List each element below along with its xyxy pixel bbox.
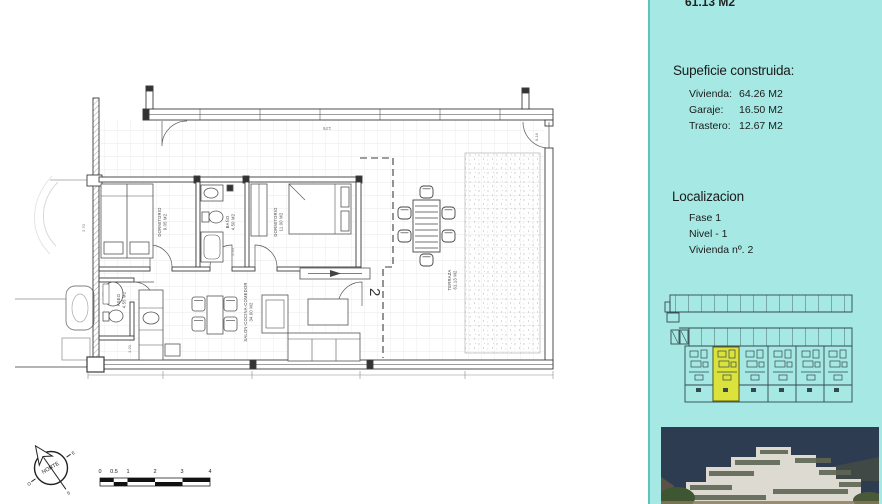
svg-text:BAÑO: BAÑO — [225, 215, 230, 228]
terrace-paving — [465, 153, 540, 353]
svg-text:DORMITORIO: DORMITORIO — [273, 207, 278, 237]
top-area-value: 61.13 M2 — [685, 0, 735, 9]
location-list: Fase 1 Nivel - 1 Vivienda nº. 2 — [689, 210, 753, 258]
compass-south: S — [66, 490, 71, 496]
surface-heading: Supeficie construida: — [673, 63, 794, 78]
compass-norte-label: NORTE — [41, 461, 61, 476]
compass-east: E — [71, 450, 76, 456]
scale-bar: 0 0.5 1 2 3 4 — [98, 469, 211, 486]
svg-text:4.55 M2: 4.55 M2 — [122, 291, 127, 308]
room-label-bano: BAÑO 4.50 M2 — [225, 213, 236, 230]
surface-list: Vivienda: 64.26 M2 Garaje: 16.50 M2 Tras… — [689, 86, 783, 134]
room-label-terraza: TERRAZA 61.13 M2 — [447, 270, 458, 291]
svg-text:61.13 M2: 61.13 M2 — [453, 270, 458, 290]
surface-item-value: 16.50 M2 — [739, 102, 783, 118]
dim-220: 2.20 — [230, 247, 235, 256]
scale-tick-0: 0 — [98, 469, 101, 475]
surface-item-garaje: Garaje: 16.50 M2 — [689, 102, 783, 118]
info-sidebar: 61.13 M2 Supeficie construida: Vivienda:… — [648, 0, 882, 504]
scale-tick-05: 0.5 — [110, 469, 118, 475]
development-photo — [661, 427, 879, 504]
dimension-ticks — [88, 371, 553, 379]
room-label-aseo: ASEO 4.55 M2 — [116, 291, 127, 308]
dim-top-width: 13'6 — [322, 126, 331, 131]
surface-item-label: Garaje: — [689, 102, 739, 118]
svg-text:TERRAZA: TERRAZA — [447, 270, 452, 291]
dim-818: 8.18 — [534, 132, 539, 141]
surface-item-trastero: Trastero: 12.67 M2 — [689, 118, 783, 134]
svg-text:ASEO: ASEO — [116, 293, 121, 306]
scale-tick-1: 1 — [126, 469, 129, 475]
location-heading: Localizacion — [672, 189, 744, 204]
surface-item-label: Vivienda: — [689, 86, 739, 102]
scale-tick-3: 3 — [180, 469, 183, 475]
surface-item-value: 64.26 M2 — [739, 86, 783, 102]
svg-text:DORMITORIO: DORMITORIO — [157, 207, 162, 237]
surface-item-value: 12.67 M2 — [739, 118, 783, 134]
location-item-nivel: Nivel - 1 — [689, 226, 753, 242]
scale-tick-2: 2 — [153, 469, 156, 475]
svg-text:4.50 M2: 4.50 M2 — [231, 213, 236, 230]
unit-number-label: 2 — [366, 288, 383, 296]
north-arrow: E O S NORTE — [12, 430, 93, 504]
location-item-vivienda: Vivienda nº. 2 — [689, 242, 753, 258]
floor-plan-drawing: DORMITORIO 9.05 M2 BAÑO 4.50 M2 DORMITOR… — [0, 0, 660, 504]
planter — [66, 286, 94, 330]
surface-item-label: Trastero: — [689, 118, 739, 134]
twin-beds — [101, 184, 153, 258]
site-context-lines — [15, 176, 94, 367]
double-bed — [251, 184, 351, 236]
mini-site-plan — [662, 289, 860, 405]
svg-text:9.05 M2: 9.05 M2 — [163, 213, 168, 230]
brochure-page: DORMITORIO 9.05 M2 BAÑO 4.50 M2 DORMITOR… — [0, 0, 882, 504]
location-item-fase: Fase 1 — [689, 210, 753, 226]
scale-tick-4: 4 — [208, 469, 211, 475]
svg-text:11.00 M2: 11.00 M2 — [279, 212, 284, 231]
surface-item-vivienda: Vivienda: 64.26 M2 — [689, 86, 783, 102]
svg-text:SALON-COCINA-COMEDOR: SALON-COCINA-COMEDOR — [243, 282, 248, 341]
svg-text:34.00 M2: 34.00 M2 — [249, 302, 254, 322]
dim-270: 2.70 — [81, 223, 86, 232]
dim-320: 3.20 — [127, 344, 132, 353]
